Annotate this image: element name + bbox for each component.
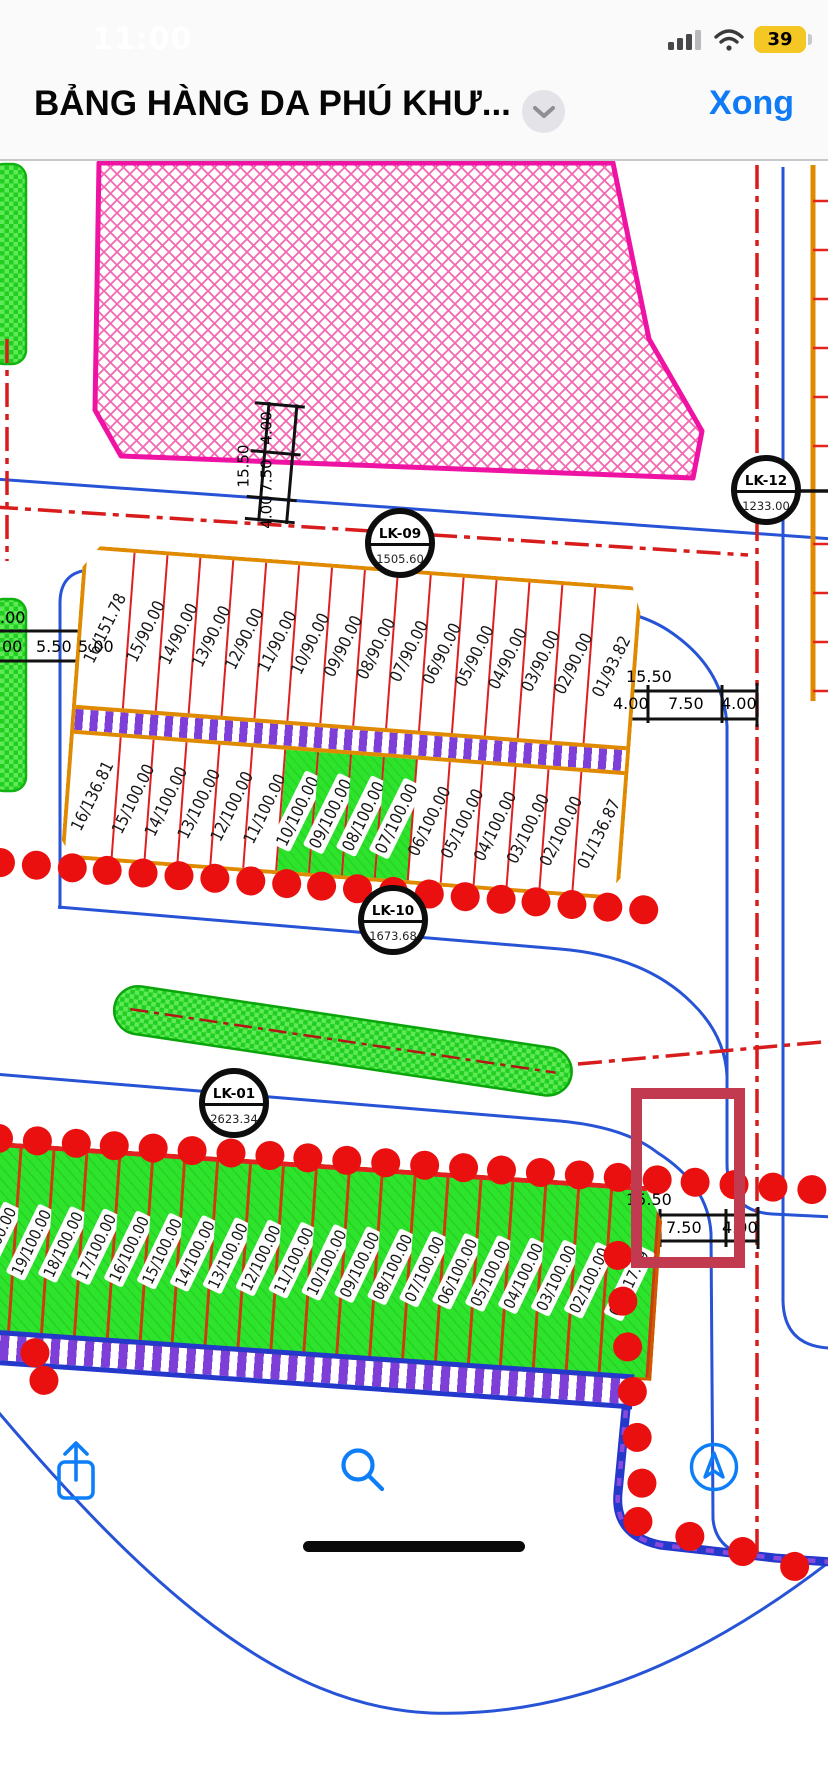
hatched-area-pink [95,163,702,478]
dim-label: 7.50 [668,694,704,713]
dim-label: 00 [2,637,22,656]
boundary-dot [370,1147,401,1178]
boundary-dot [138,1133,169,1164]
boundary-dot [332,1145,363,1176]
dim-label: .00 [0,608,25,627]
boundary-dot [164,860,195,891]
share-button[interactable] [48,1438,104,1508]
dim-label: 4.00 [258,411,276,444]
badge-name: LK-09 [371,514,429,546]
share-icon [48,1438,104,1504]
collapse-button[interactable] [522,90,565,133]
dim-label: 15.50 [626,667,672,686]
iphone-screen: 11:00 39 BẢNG HÀNG DA PHÚ KHƯ [0,0,828,1792]
badge-area: 1673.68 [364,923,422,949]
boundary-dot [99,1130,130,1161]
boundary-dot [592,892,623,923]
boundary-dot [449,881,480,912]
search-icon [336,1443,388,1495]
battery-icon: 39 [754,26,806,53]
boundary-dot [21,850,52,881]
boundary-dot [757,1172,788,1203]
boundary-dot [628,894,659,925]
boundary-dot [796,1174,827,1205]
dim-label: 4.00 [613,694,649,713]
dim-label: 5.00 [78,637,114,656]
badge-area: 1505.60 [371,546,429,572]
boundary-dot [199,863,230,894]
badge-lk10: LK-10 1673.68 [358,885,428,955]
boundary-dot [612,1331,644,1363]
boundary-dot [0,847,16,878]
cellular-signal-icon [668,28,704,52]
boundary-dot [616,1376,648,1408]
boundary-dot [409,1150,440,1181]
dim-label: 4.00 [721,694,757,713]
badge-lk12: LK-12 1233.00 [731,455,801,525]
boundary-dot [293,1143,324,1174]
plot-label: 01/136.87 [573,796,624,872]
document-title: BẢNG HÀNG DA PHÚ KHƯ... [34,84,514,124]
boundary-dot [0,1123,14,1154]
boundary-dot [607,1285,639,1317]
dim-label: 5.50 [36,637,72,656]
badge-area: 2623.34 [205,1106,263,1132]
boundary-dot [254,1140,285,1171]
wifi-icon [713,28,745,52]
nav-divider [0,159,828,161]
status-time: 11:00 [92,22,193,57]
block-lk09-lk10: 16/151.7815/90.0014/90.0013/90.0012/90.0… [60,545,642,900]
highlight-rectangle [631,1088,745,1268]
boundary-dot [486,1155,517,1186]
boundary-dot [22,1125,53,1156]
boundary-dot [271,868,302,899]
badge-name: LK-12 [737,461,795,493]
nav-bar: BẢNG HÀNG DA PHÚ KHƯ... Xong [0,62,828,160]
boundary-dot [61,1128,92,1159]
boundary-dot [56,852,87,883]
boundary-dot [235,865,266,896]
badge-lk09: LK-09 1505.60 [365,508,435,578]
boundary-dot [603,1162,634,1193]
home-indicator[interactable] [303,1541,525,1552]
navigate-button[interactable] [686,1439,742,1499]
lk12-block-edge [788,165,828,701]
status-bar: 11:00 39 [0,0,828,62]
bottom-toolbar [0,1425,828,1792]
badge-name: LK-01 [205,1074,263,1106]
chevron-down-icon [533,105,555,119]
battery-percent: 39 [767,29,792,50]
dim-label: 4.00 [258,495,276,528]
location-arrow-icon [686,1439,742,1495]
dim-label: 15.50 [234,445,252,488]
boundary-dot [128,858,159,889]
boundary-dot [521,886,552,917]
top-bars: 11:00 39 BẢNG HÀNG DA PHÚ KHƯ [0,0,828,161]
badge-lk01: LK-01 2623.34 [199,1068,269,1138]
boundary-dot [307,871,338,902]
dim-label: 7.50 [258,459,276,492]
boundary-dot [602,1239,634,1271]
boundary-dot [448,1152,479,1183]
boundary-dot [557,889,588,920]
plot: 01/136.87 [574,772,625,896]
boundary-dot [215,1138,246,1169]
boundary-dot [564,1160,595,1191]
boundary-dot [177,1135,208,1166]
boundary-dot [485,884,516,915]
badge-name: LK-10 [364,891,422,923]
done-button[interactable]: Xong [709,84,794,123]
boundary-dot [92,855,123,886]
search-button[interactable] [336,1443,388,1499]
badge-area: 1233.00 [737,493,795,519]
boundary-dot [525,1157,556,1188]
